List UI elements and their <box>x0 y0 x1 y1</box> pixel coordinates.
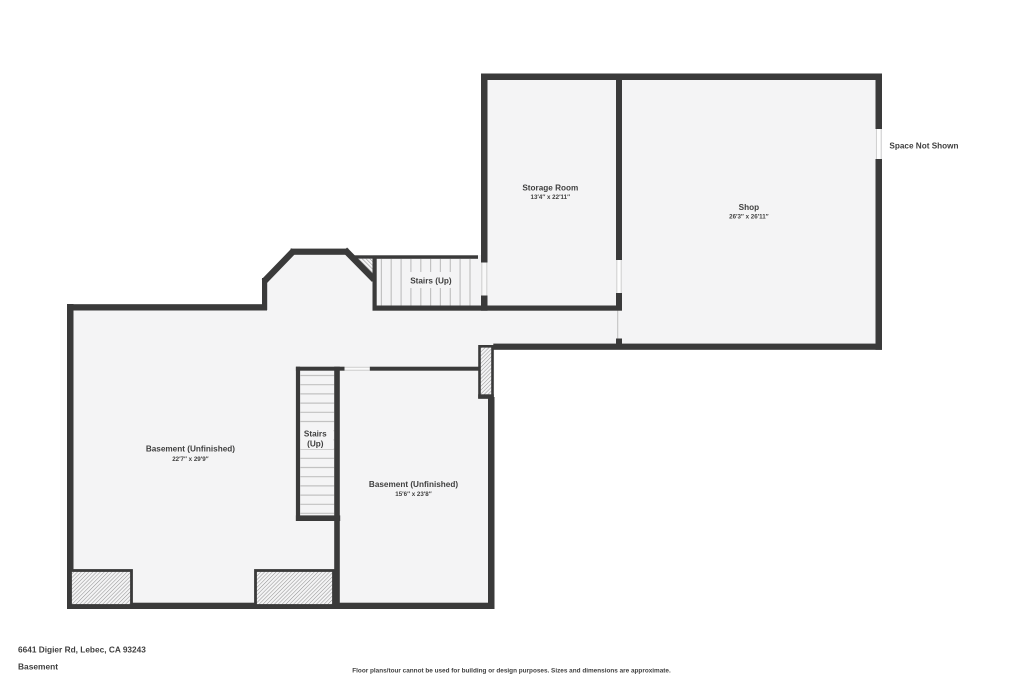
svg-text:26′3″ x 26′11″: 26′3″ x 26′11″ <box>729 214 769 221</box>
svg-text:6641 Digier Rd, Lebec, CA 9324: 6641 Digier Rd, Lebec, CA 93243 <box>18 644 146 654</box>
svg-text:Storage Room: Storage Room <box>522 183 578 192</box>
svg-text:15′6″ x 23′8″: 15′6″ x 23′8″ <box>395 491 431 498</box>
svg-text:Floor plans/tour cannot be use: Floor plans/tour cannot be used for buil… <box>352 667 671 674</box>
svg-text:22′7″ x 29′9″: 22′7″ x 29′9″ <box>172 456 208 463</box>
svg-text:Stairs: Stairs <box>304 429 327 438</box>
svg-text:Stairs (Up): Stairs (Up) <box>410 276 452 285</box>
svg-text:(Up): (Up) <box>307 440 324 449</box>
svg-text:Space Not Shown: Space Not Shown <box>889 142 958 151</box>
svg-text:Basement: Basement <box>18 661 58 671</box>
svg-text:Basement (Unfinished): Basement (Unfinished) <box>369 480 458 489</box>
svg-text:13′4″ x 22′11″: 13′4″ x 22′11″ <box>531 194 571 201</box>
svg-text:Basement (Unfinished): Basement (Unfinished) <box>146 444 235 453</box>
svg-text:Shop: Shop <box>739 203 759 212</box>
